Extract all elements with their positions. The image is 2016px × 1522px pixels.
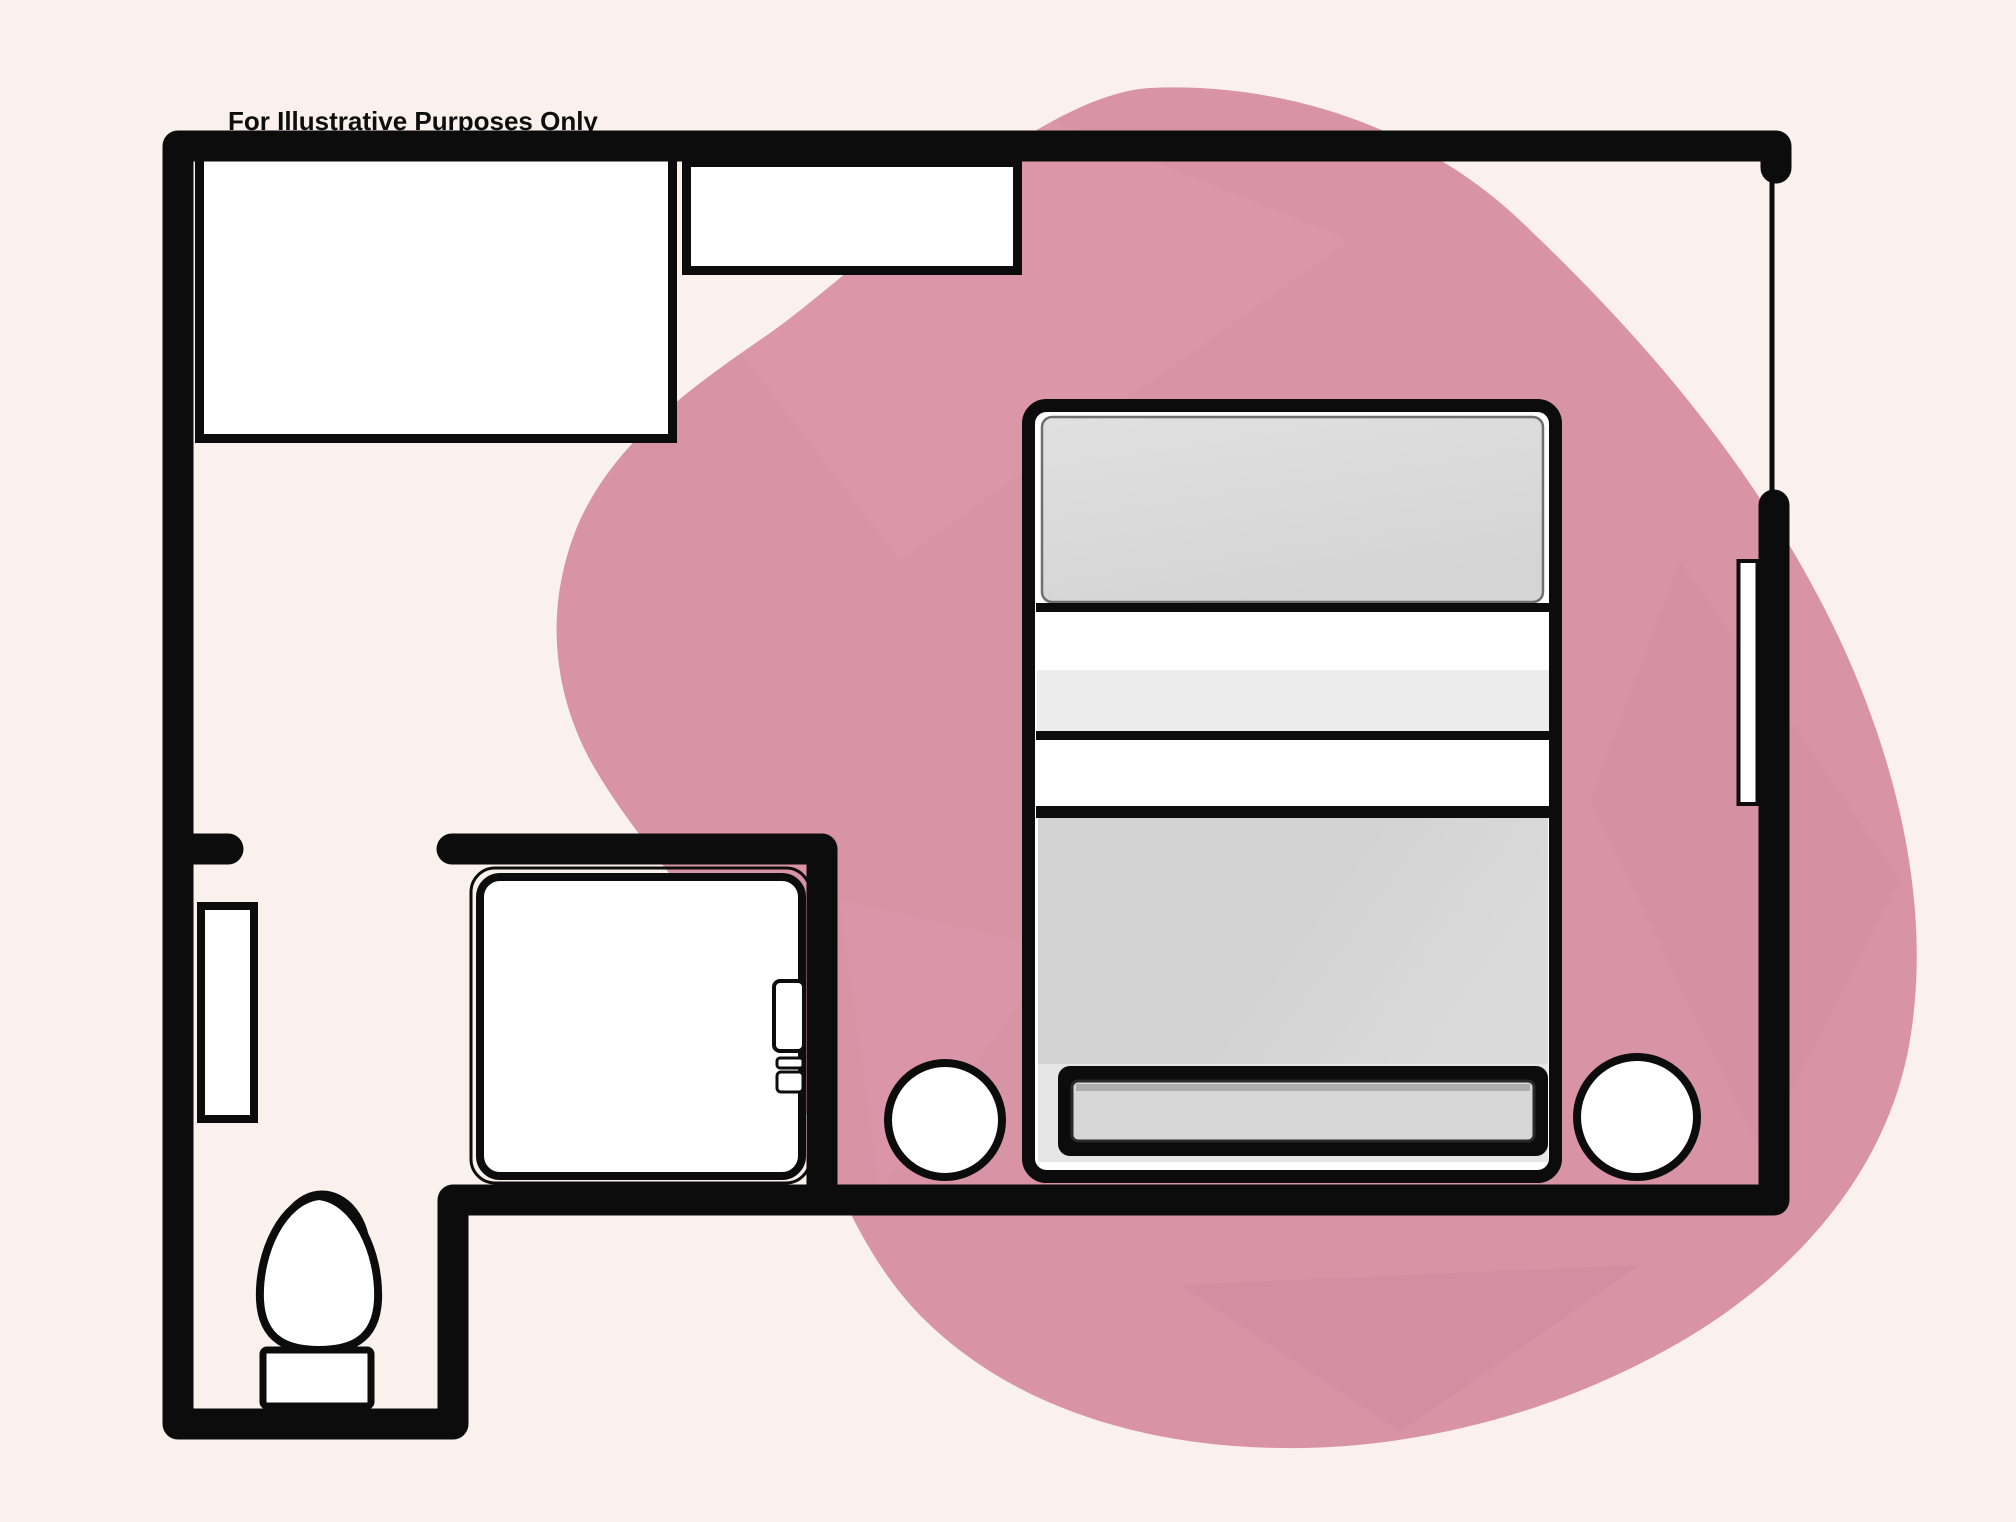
dresser <box>687 163 1018 271</box>
bed-blanket <box>1038 818 1548 1064</box>
door-panel-left <box>201 906 254 1119</box>
bed-seam-line-3 <box>1036 806 1550 818</box>
shower <box>471 868 810 1183</box>
bed-sheet-fold <box>1037 670 1549 732</box>
bed-seam-line-2 <box>1036 731 1550 740</box>
shower-handle-hinge-large <box>777 1072 803 1092</box>
nightstand-right <box>1577 1057 1697 1177</box>
pillow <box>1042 417 1543 602</box>
footboard-bench-bar-shadow <box>1076 1084 1530 1091</box>
bed-seam-line-1 <box>1036 603 1550 612</box>
shower-pan <box>480 877 802 1176</box>
window-right <box>1739 561 1758 804</box>
floor-plan-canvas: For Illustrative Purposes Only <box>0 0 2016 1522</box>
shower-handle-hinge-small <box>777 1058 803 1068</box>
floor-plan-svg: For Illustrative Purposes Only <box>0 0 2016 1522</box>
shower-handle <box>774 981 804 1092</box>
toilet-base <box>263 1350 371 1406</box>
shower-handle-plate <box>774 981 804 1051</box>
nightstand-left <box>888 1063 1002 1177</box>
caption: For Illustrative Purposes Only <box>228 106 598 136</box>
bed <box>1029 406 1556 1177</box>
closet <box>200 157 673 439</box>
toilet <box>260 1194 378 1406</box>
